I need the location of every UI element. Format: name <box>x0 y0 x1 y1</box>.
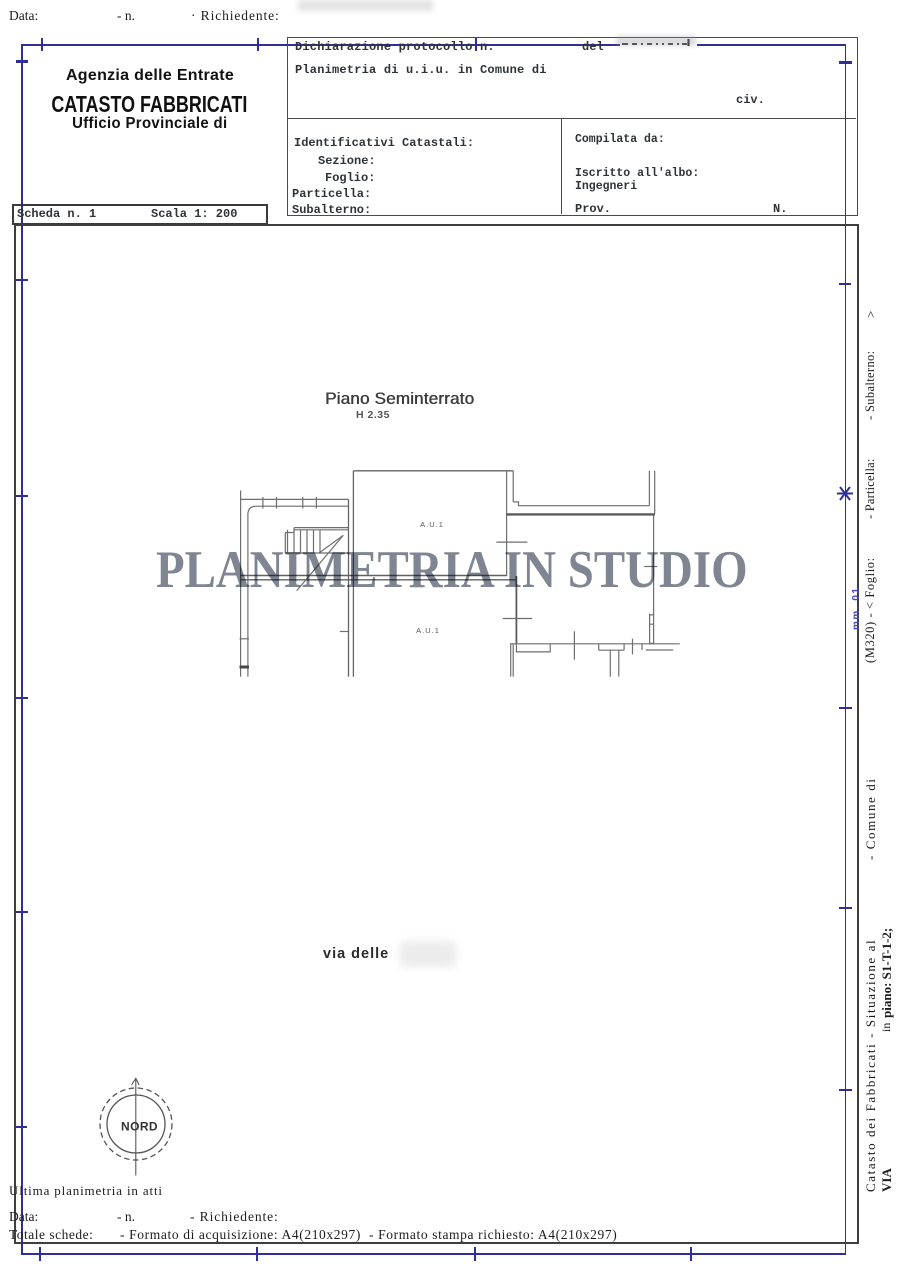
svg-text:A.U.1: A.U.1 <box>420 520 444 529</box>
svg-text:A.U.1: A.U.1 <box>416 626 440 635</box>
svg-text:NORD: NORD <box>121 1120 158 1134</box>
